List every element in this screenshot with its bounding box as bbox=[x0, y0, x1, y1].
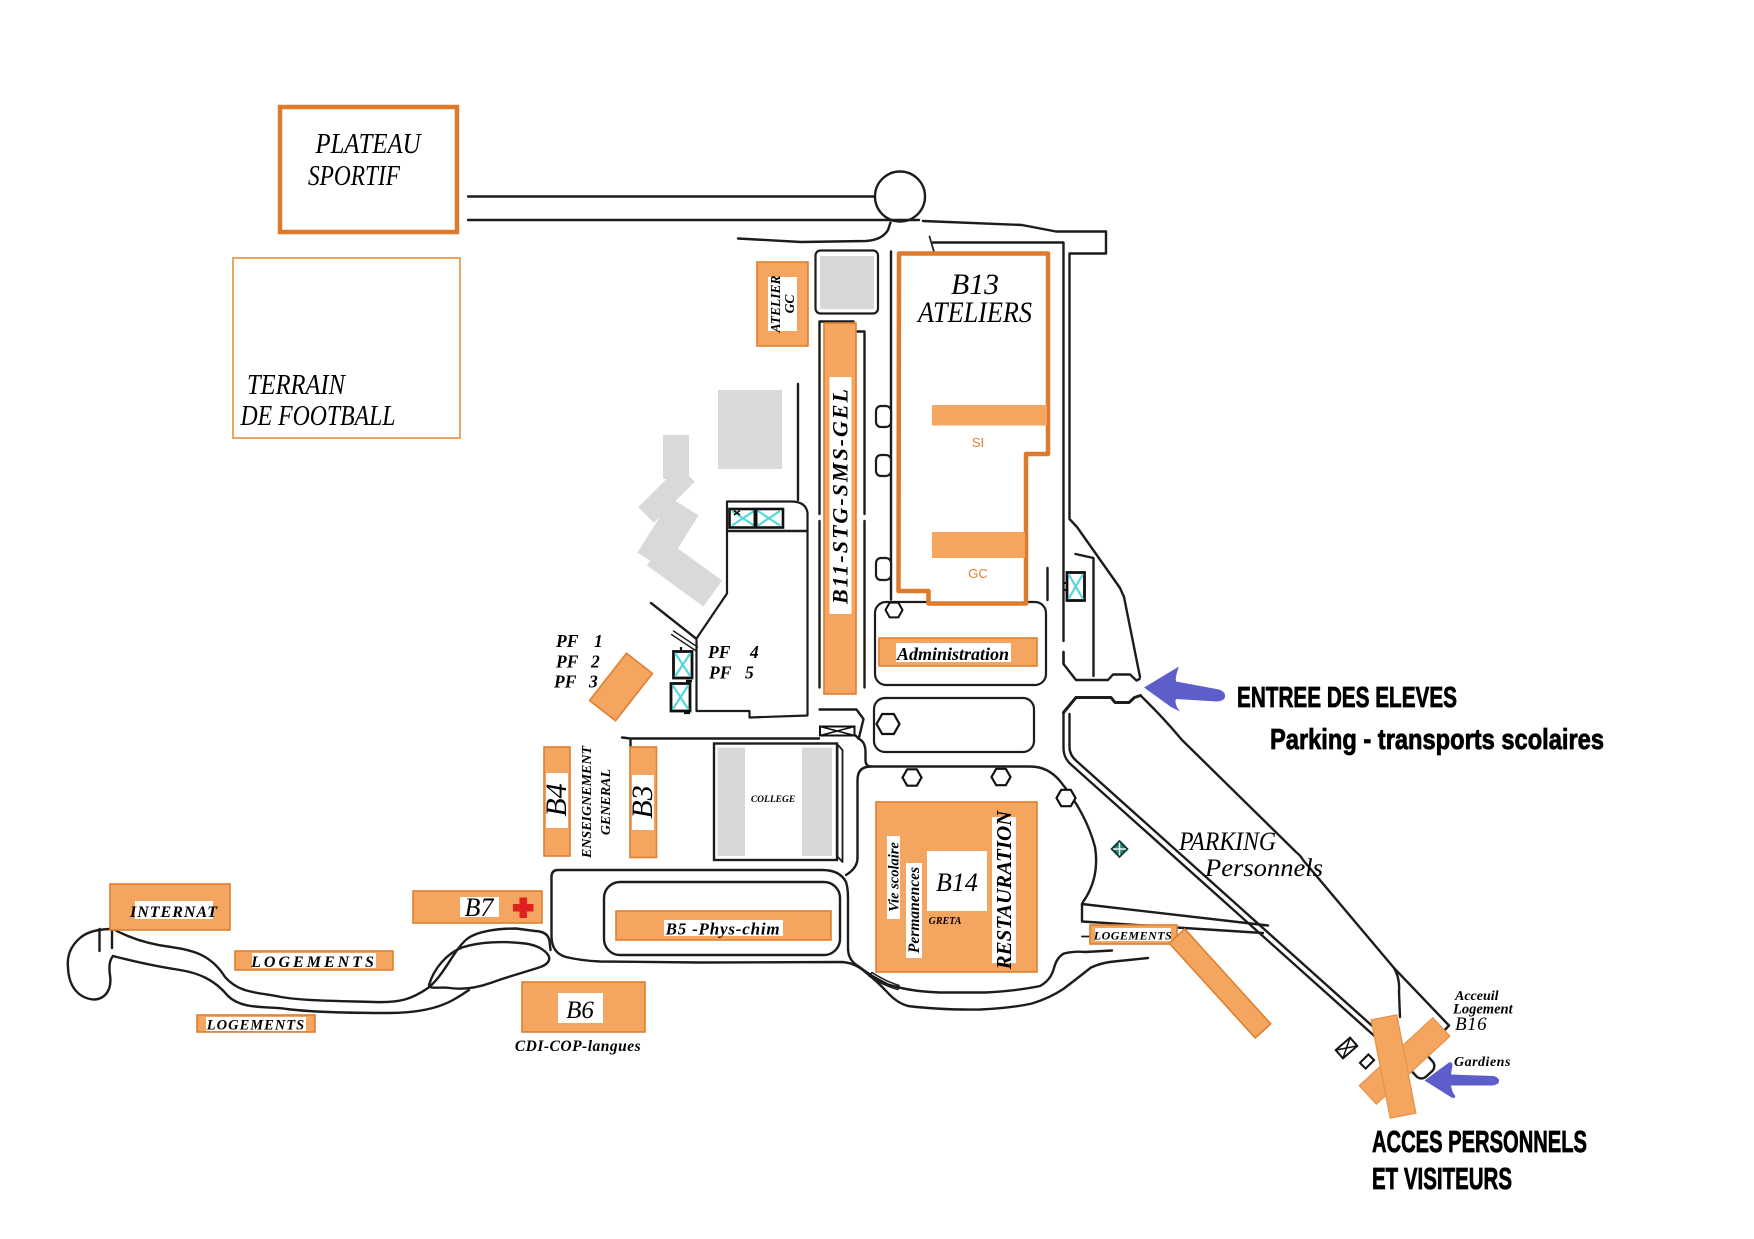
svg-text:Administration: Administration bbox=[896, 644, 1009, 664]
svg-text:PARKING: PARKING bbox=[1178, 827, 1276, 856]
svg-text:LOGEMENTS: LOGEMENTS bbox=[206, 1018, 305, 1034]
svg-text:2: 2 bbox=[590, 652, 600, 672]
svg-text:INTERNAT: INTERNAT bbox=[129, 904, 218, 921]
svg-text:PF: PF bbox=[555, 631, 579, 651]
svg-text:DE FOOTBALL: DE FOOTBALL bbox=[240, 401, 396, 432]
svg-text:B5 -Phys-chim: B5 -Phys-chim bbox=[665, 920, 781, 939]
svg-text:4: 4 bbox=[749, 642, 759, 662]
svg-text:GENERAL: GENERAL bbox=[599, 769, 614, 835]
svg-text:TERRAIN: TERRAIN bbox=[247, 370, 346, 401]
svg-text:SPORTIF: SPORTIF bbox=[308, 161, 401, 192]
svg-text:Parking - transports scolai: Parking - transports scolaires bbox=[1270, 724, 1604, 756]
svg-text:Permanences: Permanences bbox=[906, 867, 923, 953]
svg-text:5: 5 bbox=[745, 663, 754, 683]
svg-text:GRETA: GRETA bbox=[929, 916, 962, 927]
svg-text:GC: GC bbox=[968, 566, 988, 581]
svg-text:1: 1 bbox=[594, 631, 603, 651]
svg-text:LOGEMENTS: LOGEMENTS bbox=[1093, 929, 1173, 943]
svg-text:PF: PF bbox=[708, 663, 732, 683]
svg-text:B3: B3 bbox=[626, 785, 659, 818]
svg-text:B6: B6 bbox=[566, 997, 594, 1024]
svg-text:SI: SI bbox=[972, 435, 984, 450]
svg-text:GC: GC bbox=[782, 294, 797, 314]
svg-text:PLATEAU: PLATEAU bbox=[315, 129, 422, 160]
svg-text:PF: PF bbox=[553, 672, 577, 692]
svg-text:B11-STG-SMS-GEL: B11-STG-SMS-GEL bbox=[828, 387, 853, 605]
svg-text:LOGEMENTS: LOGEMENTS bbox=[250, 954, 377, 971]
svg-text:B14: B14 bbox=[936, 868, 978, 897]
svg-text:ACCES PERSONNELS: ACCES PERSONNELS bbox=[1372, 1124, 1587, 1159]
svg-text:ATELIERS: ATELIERS bbox=[916, 296, 1032, 329]
svg-text:COLLEGE: COLLEGE bbox=[751, 795, 795, 805]
svg-text:B16: B16 bbox=[1455, 1014, 1487, 1035]
svg-text:ET VISITEURS: ET VISITEURS bbox=[1372, 1161, 1512, 1196]
svg-text:ENSEIGNEMENT: ENSEIGNEMENT bbox=[580, 745, 595, 859]
svg-text:RESTAURATION: RESTAURATION bbox=[992, 810, 1016, 971]
svg-text:PF: PF bbox=[555, 652, 579, 672]
svg-text:3: 3 bbox=[588, 672, 598, 692]
svg-text:ATELIER: ATELIER bbox=[768, 275, 783, 333]
svg-text:CDI-COP-langues: CDI-COP-langues bbox=[515, 1038, 641, 1055]
svg-text:ENTREE DES ELEVES: ENTREE DES ELEVES bbox=[1237, 682, 1457, 714]
svg-text:B7: B7 bbox=[465, 893, 495, 922]
svg-text:Gardiens: Gardiens bbox=[1454, 1055, 1511, 1070]
svg-text:Vie scolaire: Vie scolaire bbox=[887, 842, 903, 912]
svg-text:Personnels: Personnels bbox=[1204, 855, 1323, 882]
svg-text:B4: B4 bbox=[540, 783, 573, 816]
svg-text:PF: PF bbox=[707, 642, 731, 662]
